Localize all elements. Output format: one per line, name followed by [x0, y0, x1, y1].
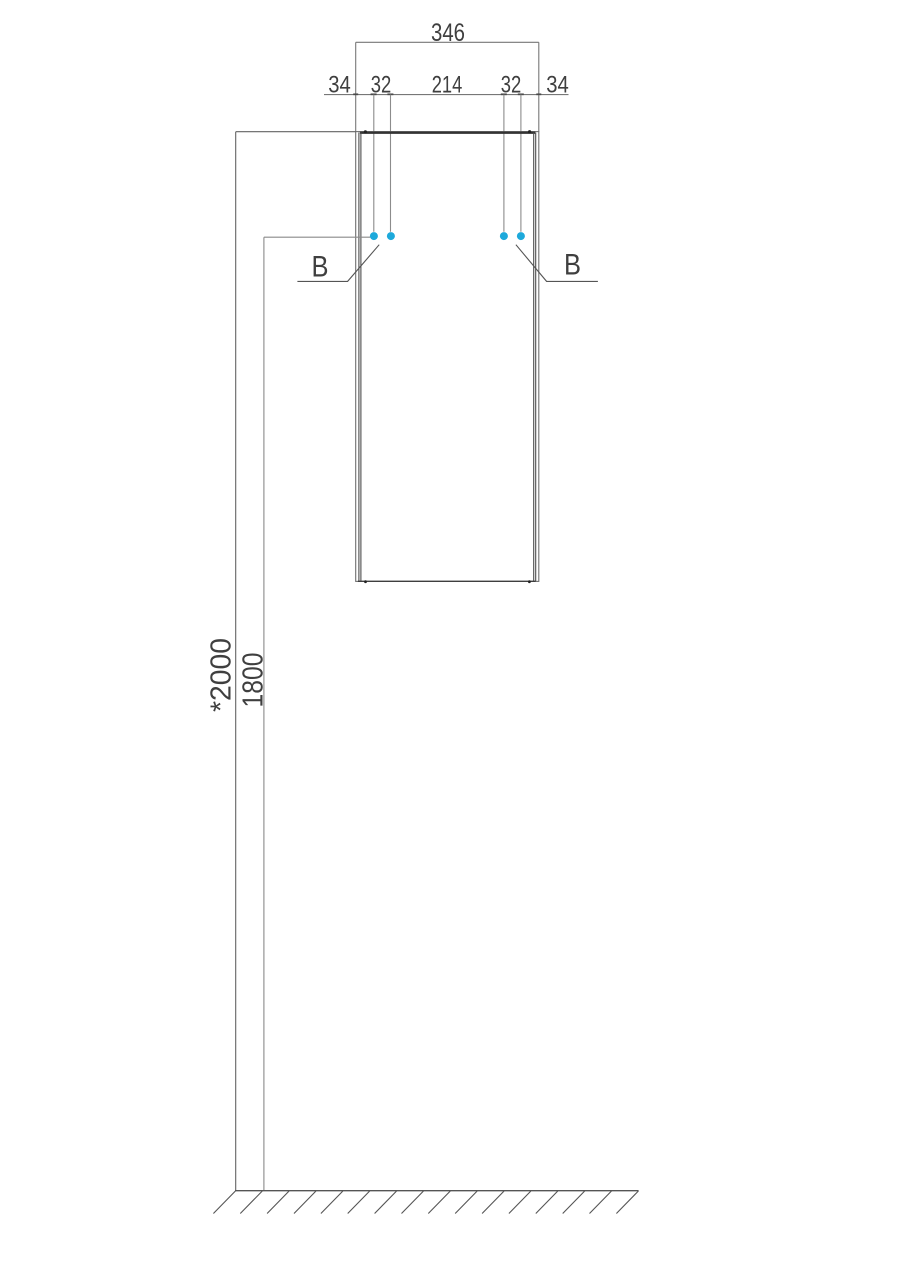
- svg-text:1800: 1800: [238, 653, 270, 708]
- svg-text:346: 346: [431, 19, 465, 47]
- svg-text:34: 34: [546, 72, 569, 99]
- svg-text:B: B: [312, 251, 329, 284]
- svg-text:34: 34: [328, 72, 351, 99]
- svg-text:B: B: [564, 249, 581, 282]
- svg-text:32: 32: [371, 72, 392, 99]
- svg-text:214: 214: [432, 72, 463, 99]
- svg-text:*2000: *2000: [206, 638, 238, 712]
- svg-text:32: 32: [501, 72, 522, 99]
